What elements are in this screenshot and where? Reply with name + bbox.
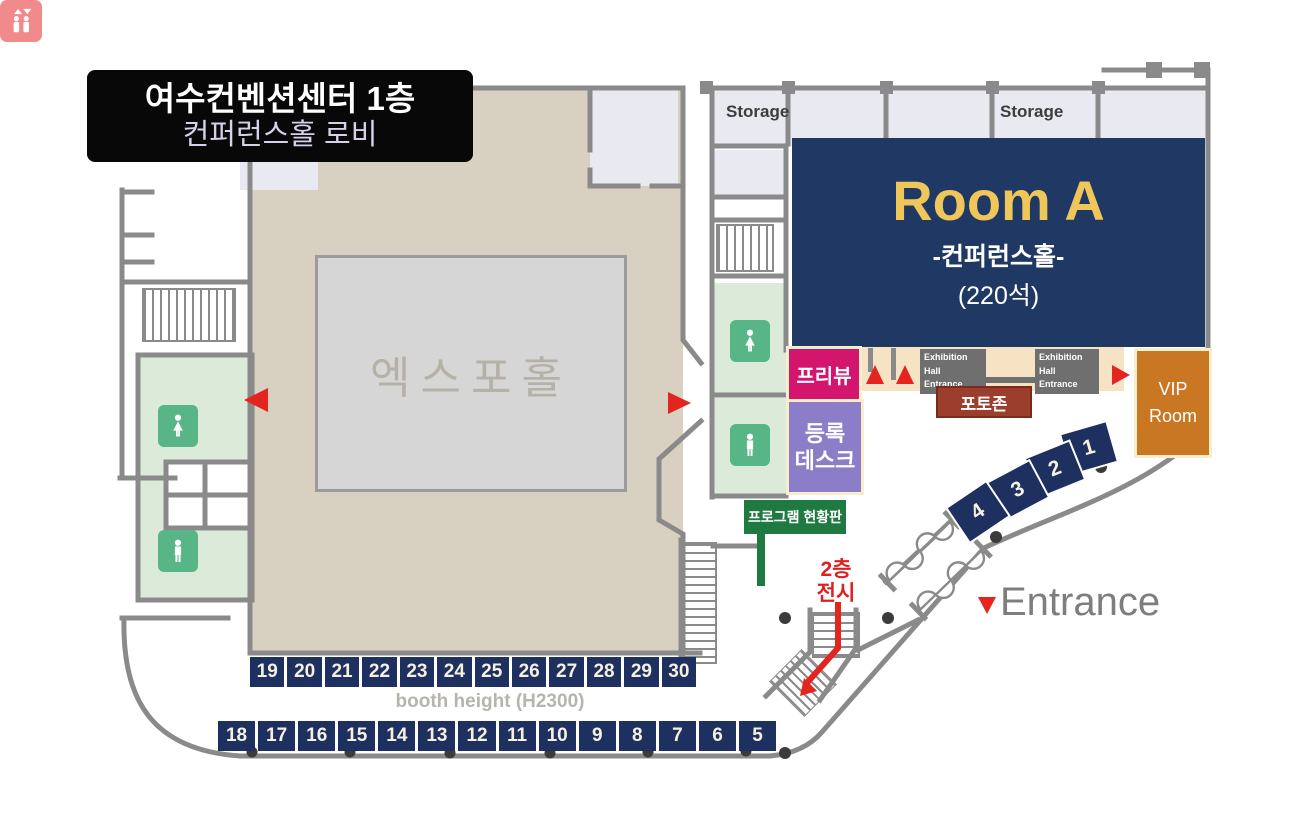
storage-label-right: Storage [1000, 102, 1063, 122]
booth-18: 18 [218, 721, 255, 751]
booth-21: 21 [325, 657, 359, 687]
booth-28: 28 [587, 657, 621, 687]
wall [590, 92, 683, 186]
room-a: Room A -컨퍼런스홀- (220석) [792, 138, 1205, 347]
booth-7: 7 [659, 721, 696, 751]
booth-6: 6 [699, 721, 736, 751]
photo-zone: 포토존 [936, 386, 1032, 418]
photo-zone-label: 포토존 [961, 390, 1008, 415]
wall-post [782, 81, 795, 94]
wall-post [986, 81, 999, 94]
registration-desk: 등록 데스크 [786, 399, 864, 495]
booth-row-lower: 18171615141312111098765 [218, 721, 776, 751]
woman-restroom-icon [167, 413, 189, 439]
booth-12: 12 [458, 721, 495, 751]
booth-27: 27 [549, 657, 583, 687]
entrance-doors-row-inner [880, 512, 959, 590]
booth-23: 23 [400, 657, 434, 687]
booth-row-upper: 192021222324252627282930 [250, 657, 696, 687]
map-title-line1: 여수컨벤션센터 1층 [145, 79, 415, 119]
booth-14: 14 [378, 721, 415, 751]
room-a-subtitle: -컨퍼런스홀- [933, 237, 1065, 273]
booth-17: 17 [258, 721, 295, 751]
booth-11: 11 [499, 721, 536, 751]
wall-stub [868, 348, 873, 372]
booth-height-note: booth height (H2300) [390, 691, 590, 713]
preview-label: 프리뷰 [796, 360, 851, 389]
wall-stub [891, 348, 896, 380]
booth-25: 25 [475, 657, 509, 687]
man-restroom-icon [739, 432, 761, 458]
room-a-name: Room A [892, 173, 1105, 229]
program-board-label: 프로그램 현황판 [748, 507, 842, 527]
vip-room-line2: Room [1149, 403, 1197, 430]
wall [122, 192, 152, 262]
registration-line1: 등록 [805, 420, 845, 448]
restroom-men-west [158, 530, 198, 572]
program-status-board: 프로그램 현황판 [744, 500, 846, 534]
booth-20: 20 [287, 657, 321, 687]
entrance-label: Entrance [1000, 580, 1160, 625]
second-floor-stairs-label: 2층 전시 [806, 558, 866, 606]
arrow-down-icon [978, 597, 996, 614]
arrow-right-icon [1112, 365, 1130, 385]
exhibition-entrance-line1: Exhibition Hall [1039, 352, 1083, 376]
booth-26: 26 [512, 657, 546, 687]
booth-10: 10 [539, 721, 576, 751]
wall-post [1092, 81, 1105, 94]
vip-room: VIP Room [1134, 348, 1212, 458]
booth-5: 5 [739, 721, 776, 751]
exhibition-entrance-line2: Entrance [1039, 379, 1078, 389]
wall-post [1146, 62, 1162, 78]
program-board-stand [757, 534, 765, 586]
exhibition-entrance-line1: Exhibition Hall [924, 352, 968, 376]
booth-15: 15 [338, 721, 375, 751]
booth-29: 29 [624, 657, 658, 687]
wall [683, 88, 701, 363]
booth-30: 30 [662, 657, 696, 687]
vip-room-line1: VIP [1158, 376, 1187, 403]
booth-13: 13 [418, 721, 455, 751]
preview-booth: 프리뷰 [786, 346, 862, 402]
booth-9: 9 [579, 721, 616, 751]
wall-post [1194, 62, 1210, 78]
arrow-right-icon [668, 392, 691, 414]
booth-19: 19 [250, 657, 284, 687]
woman-restroom-icon [739, 328, 761, 354]
map-title-line2: 컨퍼런스홀 로비 [183, 118, 378, 153]
room-a-capacity: (220석) [958, 276, 1039, 312]
wall-post [880, 81, 893, 94]
booth-16: 16 [298, 721, 335, 751]
booth-24: 24 [437, 657, 471, 687]
restroom-men [730, 424, 770, 466]
floor-plan: 엑스포홀 [0, 0, 1302, 840]
registration-line2: 데스크 [795, 447, 856, 475]
restroom-women [730, 320, 770, 362]
man-restroom-icon [167, 538, 189, 564]
second-floor-line1: 2층 [806, 558, 866, 582]
booth-22: 22 [362, 657, 396, 687]
wall [166, 462, 252, 528]
wall-post [700, 81, 713, 94]
entrance-doors-row-outer [911, 541, 990, 619]
storage-label-left: Storage [726, 102, 789, 122]
map-title: 여수컨벤션센터 1층 컨퍼런스홀 로비 [87, 70, 473, 162]
second-floor-line2: 전시 [806, 582, 866, 606]
exhibition-hall-entrance-right: Exhibition Hall Entrance [1035, 349, 1099, 394]
arrow-up-icon [896, 365, 914, 384]
booth-8: 8 [619, 721, 656, 751]
restroom-women-west [158, 405, 198, 447]
